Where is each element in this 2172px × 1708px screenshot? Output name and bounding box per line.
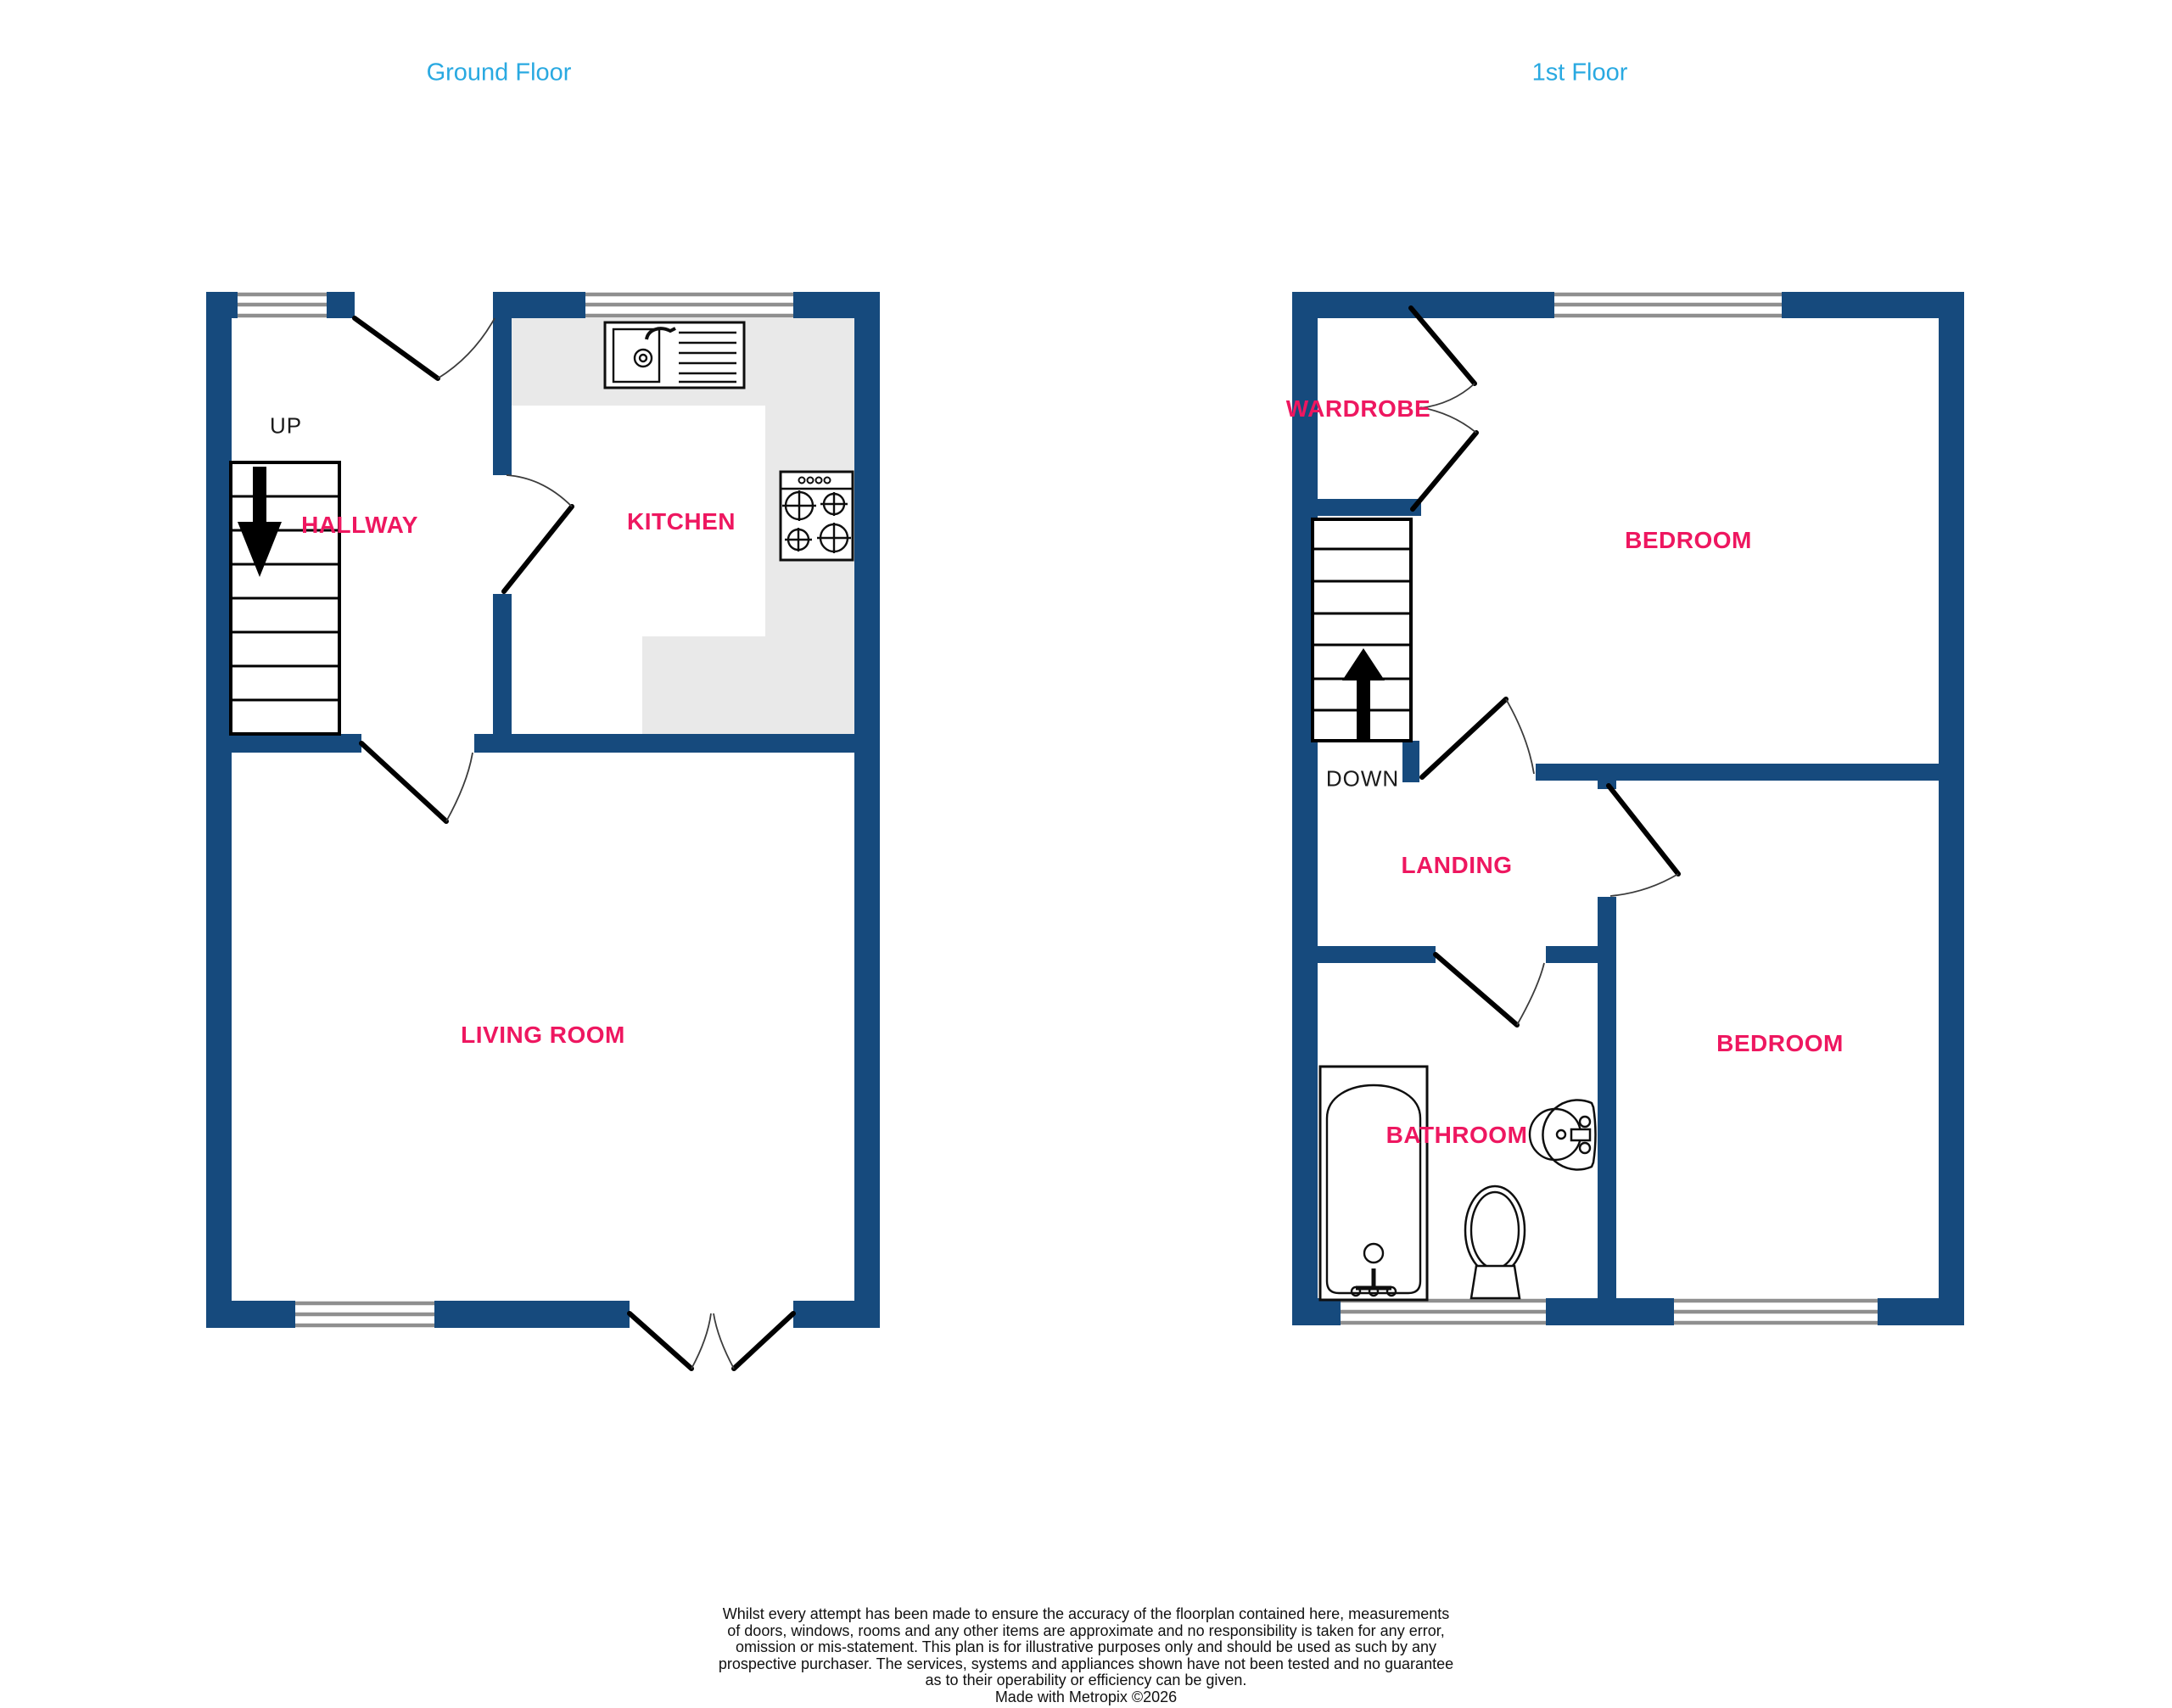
room-label-bedroom-front: BEDROOM xyxy=(1625,527,1752,554)
disclaimer-text: Whilst every attempt has been made to en… xyxy=(619,1606,1553,1705)
stairs-down-label: DOWN xyxy=(1326,766,1399,792)
living-room-window xyxy=(295,1301,434,1328)
wash-basin-icon xyxy=(1530,1100,1596,1170)
bedroom-rear-window xyxy=(1674,1298,1878,1325)
toilet-icon xyxy=(1465,1186,1525,1298)
disclaimer-line: Whilst every attempt has been made to en… xyxy=(619,1606,1553,1623)
disclaimer-line: of doors, windows, rooms and any other i… xyxy=(619,1623,1553,1640)
room-label-kitchen: KITCHEN xyxy=(627,508,736,535)
hallway-window xyxy=(238,292,327,318)
stove-hob-icon xyxy=(781,472,853,560)
disclaimer-line: as to their operability or efficiency ca… xyxy=(619,1672,1553,1689)
disclaimer-line: prospective purchaser. The services, sys… xyxy=(619,1656,1553,1673)
disclaimer-line: omission or mis-statement. This plan is … xyxy=(619,1639,1553,1656)
room-label-hallway: HALLWAY xyxy=(301,512,418,539)
floorplan-drawing xyxy=(0,0,2172,1708)
room-label-bedroom-rear: BEDROOM xyxy=(1716,1030,1844,1057)
kitchen-window xyxy=(585,292,793,318)
metropix-credit: Made with Metropix ©2026 xyxy=(619,1689,1553,1706)
front-door-swing xyxy=(355,318,495,378)
staircase-up-icon xyxy=(231,462,339,734)
stairs-up-label: UP xyxy=(270,413,302,440)
bedroom-front-window xyxy=(1554,292,1782,318)
room-label-bathroom: BATHROOM xyxy=(1386,1122,1528,1149)
ground-floor-title: Ground Floor xyxy=(427,59,572,87)
ground-floor-plan xyxy=(206,292,880,1369)
room-label-landing: LANDING xyxy=(1401,852,1512,879)
bathroom-window xyxy=(1341,1298,1546,1325)
bedroom-rear-door-swing xyxy=(1609,786,1678,896)
living-room-door-swing xyxy=(361,743,473,821)
patio-double-door-swing xyxy=(630,1313,793,1369)
staircase-down-icon xyxy=(1313,519,1411,741)
first-floor-title: 1st Floor xyxy=(1532,59,1628,87)
kitchen-door-swing xyxy=(504,475,572,591)
kitchen-sink-icon xyxy=(605,322,744,388)
bathtub-icon xyxy=(1320,1067,1427,1300)
bedroom-front-door-swing xyxy=(1422,699,1534,777)
bathroom-door-swing xyxy=(1436,955,1544,1025)
floorplan-page: Ground Floor 1st Floor UP HALLWAY KITCHE… xyxy=(0,0,2172,1708)
room-label-living-room: LIVING ROOM xyxy=(461,1022,625,1049)
room-label-wardrobe: WARDROBE xyxy=(1286,395,1430,423)
first-floor-plan xyxy=(1292,292,1964,1325)
